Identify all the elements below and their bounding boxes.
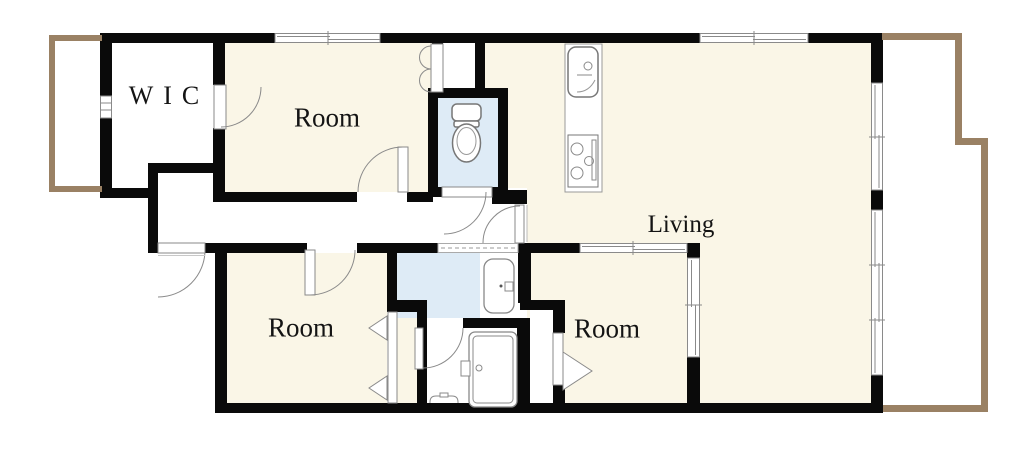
bathroom-step-icon <box>430 393 458 403</box>
living-door <box>483 205 527 243</box>
room-bl-door <box>305 250 355 295</box>
window-right-lower <box>869 210 885 375</box>
wic-label: WIC <box>119 81 210 111</box>
stove-icon <box>568 135 598 187</box>
room-bl-closet-bifold-door <box>369 312 397 403</box>
toilet-door <box>442 187 492 234</box>
window-partition-top <box>580 241 687 255</box>
room-top-door <box>358 147 408 192</box>
window-wic <box>101 96 112 118</box>
entry-door <box>158 243 205 297</box>
room-top-label: Room <box>294 103 360 134</box>
wic-door <box>214 85 261 129</box>
kitchen-sink-icon <box>568 47 598 97</box>
living-label: Living <box>648 211 715 239</box>
washbasin-icon <box>484 259 514 313</box>
kitchen-counter <box>565 44 602 192</box>
washroom-sliding-door <box>438 244 518 253</box>
room-bottom-middle-label: Room <box>574 314 640 345</box>
window-room-top <box>275 31 380 45</box>
bathroom-door <box>415 328 463 369</box>
window-living-top <box>700 31 808 45</box>
room-top-closet-bifold-door <box>420 44 444 92</box>
room-bottom-left-label: Room <box>268 313 334 344</box>
bathtub-icon <box>430 332 517 407</box>
window-right-upper <box>869 83 885 190</box>
floorplan-canvas: WIC Room Living Room Room <box>0 0 1024 463</box>
toilet-icon <box>452 104 481 162</box>
window-partition-right <box>685 258 702 357</box>
symbols-overlay <box>0 0 1024 463</box>
